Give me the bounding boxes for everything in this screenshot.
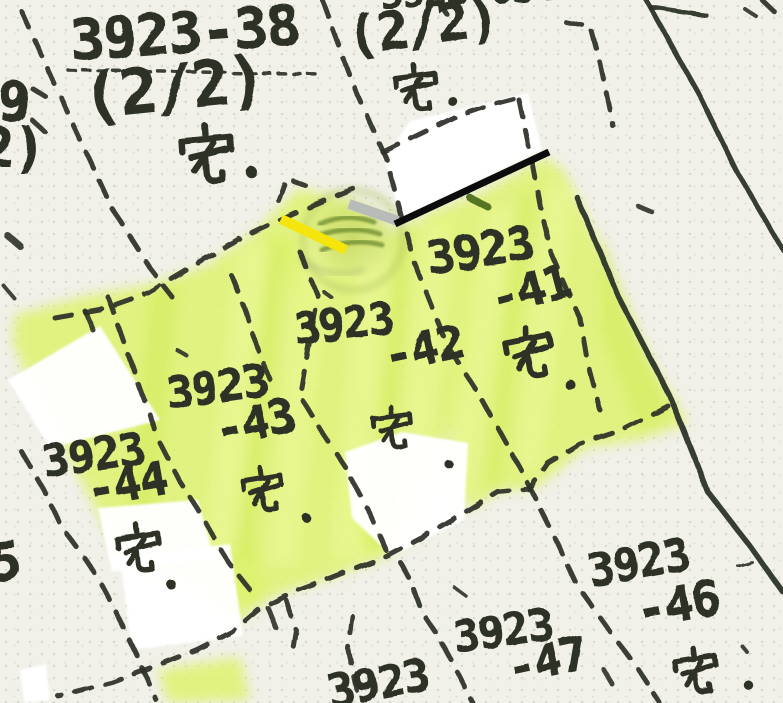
parcel-number-label: (2/2) [343,0,501,68]
parcel-boundary-dashed [566,22,613,126]
map-drawing: 3923-38(2/2)3923-634(2/2)3923-413923-423… [0,0,783,703]
taku-kanji [181,124,233,182]
land-type-dot [447,96,457,106]
ink-speck [738,562,752,566]
ink-speck [8,236,20,246]
taku-kanji [673,645,718,695]
land-type-label [393,60,457,111]
ink-speck [742,646,747,652]
land-type-label [673,640,754,699]
land-type-label [181,122,258,183]
ink-speck [268,608,276,628]
land-type-dot [246,166,258,178]
parcel-number-label: 2) [0,117,45,180]
parcel-boundary-dashed [286,600,296,654]
parcel-boundary-solid [646,0,783,250]
parcel-boundary-solid [650,7,706,15]
parcel-boundary-dashed [32,88,45,96]
taku-kanji [393,63,437,112]
ink-speck [638,206,652,212]
green-highlight-region [158,657,250,703]
ink-speck [604,670,613,685]
ink-speck [455,588,466,596]
land-type-dot [743,680,754,691]
whiteout-patch [20,664,50,703]
parcel-boundary-dashed [762,0,783,20]
parcel-number-text: (2/2) [343,0,501,68]
parcel-number-label: 5 [0,531,24,594]
parcel-number-label: 3923 [324,650,433,703]
ink-speck [744,8,756,16]
ink-speck [4,286,14,298]
parcel-number-text: 5 [0,531,24,594]
parcel-number-text: 3923 [324,650,433,703]
parcel-number-text: 2) [0,117,45,180]
cadastral-map-scan: 3923-38(2/2)3923-634(2/2)3923-413923-423… [0,0,783,703]
